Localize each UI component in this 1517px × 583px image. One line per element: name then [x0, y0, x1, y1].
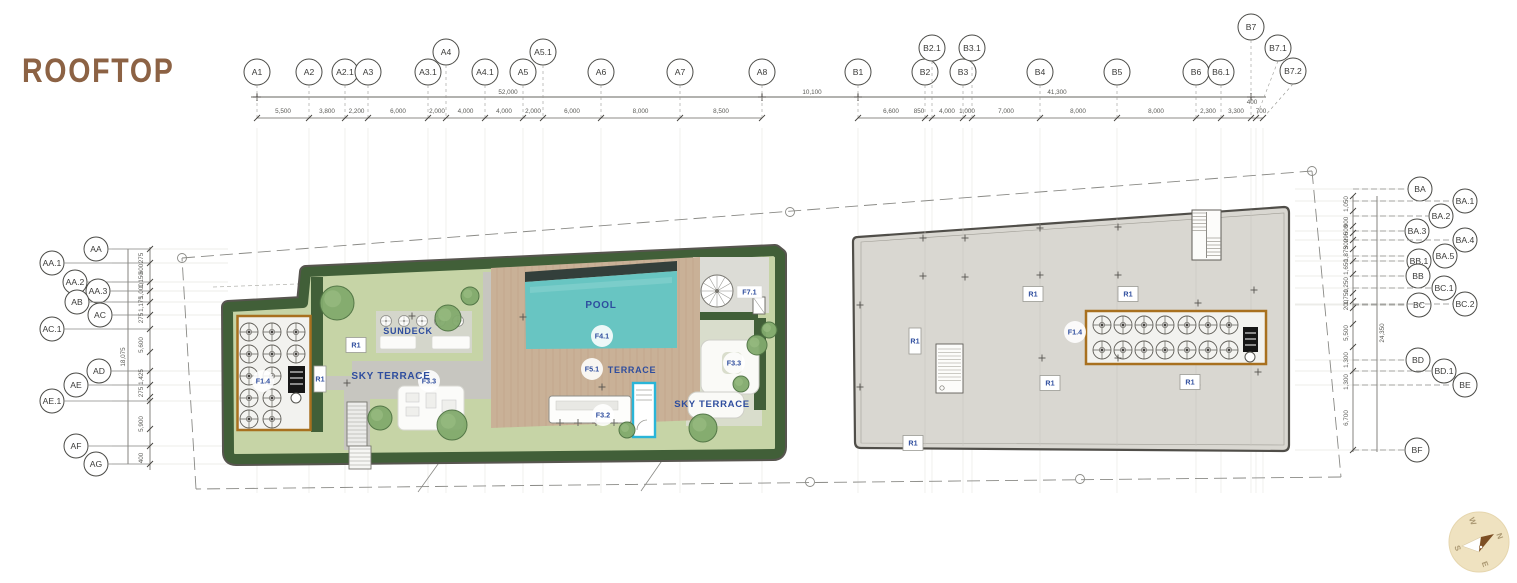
grid-bubble-label: A5: [518, 67, 529, 77]
sundeck-mat: [380, 336, 416, 349]
grid-bubble-label: B2: [920, 67, 931, 77]
r1-chip: R1: [1023, 287, 1043, 302]
tree: [320, 286, 354, 320]
dim-label: 2,000: [429, 108, 445, 115]
grid-bubble: BD: [1406, 348, 1430, 372]
grid-bubble-label: A6: [596, 67, 607, 77]
grid-bubble: B4: [1027, 59, 1053, 85]
glass-shaft: [633, 383, 655, 437]
r1-chip: R1: [909, 328, 921, 354]
grid-bubble-label: B2.1: [923, 43, 941, 53]
rack-dial: [1245, 352, 1255, 362]
compass-pivot: [1479, 545, 1482, 548]
grid-bubble-label: A7: [675, 67, 686, 77]
grid-bubble: BD.1: [1432, 359, 1456, 383]
keynote-label: F4.1: [595, 332, 609, 341]
grid-bubble-label: AF: [71, 441, 82, 451]
grid-bubble: BC.2: [1453, 292, 1477, 316]
overall-dim-label: 52,000: [498, 89, 518, 96]
grid-bubble-label: BC.2: [1455, 299, 1474, 309]
dim-label: 8,000: [1148, 108, 1164, 115]
fan-unit: [263, 410, 281, 428]
boundary-line-right: [1312, 171, 1341, 477]
grid-bubble: B2: [912, 59, 938, 85]
grid-bubble: B3.1: [959, 35, 985, 61]
dim-label: 1,300: [1343, 374, 1350, 390]
grid-bubble-label: AE.1: [43, 396, 62, 406]
grid-bubble-label: A3: [363, 67, 374, 77]
fan-unit: [1178, 316, 1196, 334]
grid-bubble-label: AA: [90, 244, 102, 254]
equipment-area: [1086, 311, 1266, 364]
fan-unit: [1093, 316, 1111, 334]
tree: [461, 287, 479, 305]
r1-chip: R1: [314, 366, 326, 392]
fan-unit: [1220, 341, 1238, 359]
keynote-chip: F4.1: [591, 325, 613, 347]
fan-unit: [240, 410, 258, 428]
grid-bubble: A4: [433, 39, 459, 65]
keynote-chip: F7.1: [737, 286, 762, 298]
grid-bubble-label: AD: [93, 366, 105, 376]
dim-label: 400: [138, 452, 145, 463]
grid-bubble-label: A2: [304, 67, 315, 77]
sky-terrace-right-label: SKY TERRACE: [674, 399, 750, 410]
grid-bubble: A3: [355, 59, 381, 85]
boundary-marker: [786, 208, 795, 217]
boundary-marker: [1076, 475, 1085, 484]
grid-bubble: B7.1: [1265, 35, 1291, 61]
fan-unit: [1220, 316, 1238, 334]
garden-roof-building: [228, 251, 780, 469]
keynote-label: F3.2: [596, 411, 610, 420]
grid-bubble-label: B1: [853, 67, 864, 77]
grid-bubble: A5: [510, 59, 536, 85]
dim-label: 5,600: [138, 337, 145, 353]
dim-label: 3,300: [1228, 108, 1244, 115]
r1-chip: R1: [1118, 287, 1138, 302]
r1-label: R1: [908, 439, 917, 448]
dim-label: 8,000: [1070, 108, 1086, 115]
tree: [437, 410, 467, 440]
fan-unit: [1156, 341, 1174, 359]
lounge-furniture: [406, 407, 419, 416]
dim-label: 4,000: [496, 108, 512, 115]
dim-label: 200: [1343, 299, 1350, 310]
hedge-strip: [700, 312, 758, 320]
r1-chip: R1: [346, 338, 366, 353]
equipment-rack: [288, 366, 305, 393]
grid-bubble: BE: [1453, 373, 1477, 397]
grid-bubble-label: AA.2: [66, 277, 85, 287]
rooftop-plan-drawing: 52,00010,10041,300A1A2A2.1A3A3.1A4A4.1A5…: [0, 0, 1517, 583]
grid-bubble-label: BF: [1412, 445, 1423, 455]
dim-label: 400: [1247, 99, 1258, 106]
fan-unit: [263, 389, 281, 407]
grid-bubble-label: AG: [90, 459, 103, 469]
umbrella-icon: [417, 316, 428, 327]
grid-bubble: BA.5: [1433, 244, 1457, 268]
pool-label: POOL: [585, 300, 616, 311]
boundary-marker: [806, 478, 815, 487]
grid-bubble: B2.1: [919, 35, 945, 61]
grid-bubble-label: AC: [94, 310, 106, 320]
grid-bubble: B6: [1183, 59, 1209, 85]
dim-label: 6,000: [390, 108, 406, 115]
sundeck-mat: [432, 336, 470, 349]
sky-terrace-left-label: SKY TERRACE: [351, 371, 430, 382]
dim-label: 6,000: [564, 108, 580, 115]
fan-unit: [240, 323, 258, 341]
grid-bubble: AE: [64, 373, 88, 397]
dim-label: 5,500: [1343, 325, 1350, 341]
dim-label: 850: [914, 108, 925, 115]
dim-label: 2,300: [1200, 108, 1216, 115]
lounge-furniture: [406, 393, 419, 402]
dim-label: 8,000: [633, 108, 649, 115]
terrace-label: TERRACE: [608, 365, 656, 375]
grid-bubble: AD: [87, 359, 111, 383]
grid-bubble-label: A5.1: [534, 47, 552, 57]
grid-bubble-label: A4.1: [476, 67, 494, 77]
umbrella-icon: [381, 316, 392, 327]
dim-label: 6,600: [883, 108, 899, 115]
grid-bubble: A2: [296, 59, 322, 85]
r1-label: R1: [1028, 290, 1037, 299]
grid-bubble-label: A4: [441, 47, 452, 57]
dim-label: 1,000: [959, 108, 975, 115]
keynote-label: F7.1: [742, 288, 756, 297]
fan-unit: [1114, 316, 1132, 334]
dim-label: 5,500: [275, 108, 291, 115]
spiral-stair: [701, 275, 733, 307]
keynote-label: F3.3: [727, 359, 741, 368]
grid-bubble-label: B3.1: [963, 43, 981, 53]
tree: [689, 414, 717, 442]
dim-label: 3,800: [319, 108, 335, 115]
grid-bubble: BF: [1405, 438, 1429, 462]
keynote-label: F1.4: [256, 377, 270, 386]
grid-bubble-label: BA.4: [1456, 235, 1475, 245]
dim-label: 5,900: [138, 416, 145, 432]
tree: [747, 335, 767, 355]
fan-unit: [263, 345, 281, 363]
grid-bubble: A2.1: [332, 59, 358, 85]
grid-bubble: B5: [1104, 59, 1130, 85]
grid-bubble-label: AC.1: [42, 324, 61, 334]
overall-dim-label: 18,075: [120, 347, 127, 367]
grid-bubble-label: BA.2: [1432, 211, 1451, 221]
grid-bubble-label: AB: [71, 297, 83, 307]
dim-label: 1,050: [1343, 196, 1350, 212]
grid-bubble-label: BC.1: [1434, 283, 1453, 293]
fan-unit: [240, 389, 258, 407]
keynote-chip: F5.1: [581, 358, 603, 380]
fan-unit: [287, 323, 305, 341]
grid-bubble: B6.1: [1208, 59, 1234, 85]
r1-label: R1: [351, 341, 360, 350]
grid-bubble: A7: [667, 59, 693, 85]
umbrella-icon: [399, 316, 410, 327]
rooftop-plan-sheet: ROOFTOP: [0, 0, 1517, 583]
fan-unit: [1156, 316, 1174, 334]
grid-bubble: AG: [84, 452, 108, 476]
grid-bubble-label: B4: [1035, 67, 1046, 77]
grid-bubble: BA.1: [1453, 189, 1477, 213]
fan-unit: [1199, 341, 1217, 359]
grid-bubble: BA.4: [1453, 228, 1477, 252]
grid-bubble-label: BA.1: [1456, 196, 1475, 206]
fan-unit: [240, 345, 258, 363]
dim-label: 700: [1256, 108, 1267, 115]
grid-bubble-label: B7: [1246, 22, 1257, 32]
sundeck-label: SUNDECK: [383, 326, 432, 336]
overall-dim-label: 24,350: [1379, 323, 1386, 343]
overall-dim-label: 41,300: [1047, 89, 1067, 96]
fan-unit: [1114, 341, 1132, 359]
grid-bubble: AE.1: [40, 389, 64, 413]
dim-label: 1,650: [1343, 259, 1350, 275]
fan-unit: [1135, 316, 1153, 334]
r1-label: R1: [315, 375, 324, 384]
roof-hatch: [936, 344, 963, 393]
stair-run: [347, 402, 367, 446]
dim-label: 2,000: [525, 108, 541, 115]
grid-bubble-label: BA: [1414, 184, 1426, 194]
dim-label: 8,500: [713, 108, 729, 115]
grid-bubble: BA.3: [1405, 219, 1429, 243]
r1-chip: R1: [1180, 375, 1200, 390]
tree: [368, 406, 392, 430]
grid-bubble-label: BE: [1459, 380, 1471, 390]
dim-label: 1,175: [138, 296, 145, 312]
grid-bubble: BC: [1407, 293, 1431, 317]
grid-bubble-label: BA.5: [1436, 251, 1455, 261]
dim-label: 1,425: [138, 369, 145, 385]
grid-bubble-label: A1: [252, 67, 263, 77]
stair-run-lower: [349, 446, 371, 469]
grid-bubble-label: AA.1: [43, 258, 62, 268]
fan-unit: [1093, 341, 1111, 359]
grid-bubble: AA: [84, 237, 108, 261]
grid-bubble-label: B6.1: [1212, 67, 1230, 77]
r1-label: R1: [910, 337, 919, 346]
grid-bubble: A4.1: [472, 59, 498, 85]
grid-bubble: B7: [1238, 14, 1264, 40]
grid-bubble: BA.2: [1429, 204, 1453, 228]
grid-bubble-label: AE: [70, 380, 82, 390]
grid-bubble: B1: [845, 59, 871, 85]
grid-bubble-label: B6: [1191, 67, 1202, 77]
tree: [435, 305, 461, 331]
dim-label: 275: [138, 386, 145, 397]
grid-bubble: A6: [588, 59, 614, 85]
fan-unit: [287, 345, 305, 363]
grid-bubble-label: BD: [1412, 355, 1424, 365]
r1-label: R1: [1045, 379, 1054, 388]
grid-bubble: AF: [64, 434, 88, 458]
grid-bubble: BC.1: [1432, 276, 1456, 300]
grid-bubble-label: B7.2: [1284, 66, 1302, 76]
dim-label: 4,000: [458, 108, 474, 115]
compass-rose: N E S W: [1449, 512, 1509, 572]
dim-label: 275: [138, 312, 145, 323]
dim-label: 275: [138, 252, 145, 263]
grid-bubble-label: A2.1: [336, 67, 354, 77]
r1-chip: R1: [1040, 376, 1060, 391]
keynote-label: F5.1: [585, 365, 599, 374]
tree: [619, 422, 635, 438]
spiral-center: [715, 289, 719, 293]
grid-bubble-label: BA.3: [1408, 226, 1427, 236]
r1-chip: R1: [903, 436, 923, 451]
grid-bubble: BB: [1406, 264, 1430, 288]
fan-unit: [1135, 341, 1153, 359]
keynote-chip: F3.2: [592, 404, 614, 426]
leader-line: [1263, 84, 1293, 118]
grid-bubble-label: B7.1: [1269, 43, 1287, 53]
grid-bubble-label: A3.1: [419, 67, 437, 77]
overall-dim-label: 10,100: [802, 89, 822, 96]
grid-bubble: A1: [244, 59, 270, 85]
dim-label: 2,200: [349, 108, 365, 115]
keynote-chip: F1.4: [252, 370, 274, 392]
grid-bubble: AC.1: [40, 317, 64, 341]
dim-label: 1,300: [1343, 352, 1350, 368]
tree: [761, 322, 777, 338]
r1-label: R1: [1123, 290, 1132, 299]
dim-label: 6,700: [1343, 410, 1350, 426]
grid-bubble: A3.1: [415, 59, 441, 85]
grid-bubble-label: BD.1: [1434, 366, 1453, 376]
grid-bubble: AA.3: [86, 279, 110, 303]
dim-label: 4,000: [939, 108, 955, 115]
fan-unit: [1178, 341, 1196, 359]
grid-bubble: AA.1: [40, 251, 64, 275]
grid-bubble: A8: [749, 59, 775, 85]
keynote-chip: F1.4: [1064, 321, 1086, 343]
grid-bubble-label: AA.3: [89, 286, 108, 296]
boundary-line-left: [182, 258, 196, 489]
grid-bubble-label: BC: [1413, 300, 1425, 310]
keynote-chip: F3.3: [723, 352, 745, 374]
grid-bubble: AC: [88, 303, 112, 327]
grid-bubble: AB: [65, 290, 89, 314]
fan-unit: [263, 323, 281, 341]
dim-label: 7,000: [998, 108, 1014, 115]
grid-bubble: B7.2: [1280, 58, 1306, 84]
grid-bubble-label: A8: [757, 67, 768, 77]
lounge-furniture: [426, 393, 436, 408]
keynote-label: F1.4: [1068, 328, 1082, 337]
grid-bubble-label: BB: [1412, 271, 1424, 281]
r1-label: R1: [1185, 378, 1194, 387]
grid-bubble-label: B5: [1112, 67, 1123, 77]
fan-unit: [1199, 316, 1217, 334]
grid-bubble: BA: [1408, 177, 1432, 201]
grid-bubble: A5.1: [530, 39, 556, 65]
tree: [733, 376, 749, 392]
rack-dial: [291, 393, 301, 403]
grid-bubble-label: B3: [958, 67, 969, 77]
